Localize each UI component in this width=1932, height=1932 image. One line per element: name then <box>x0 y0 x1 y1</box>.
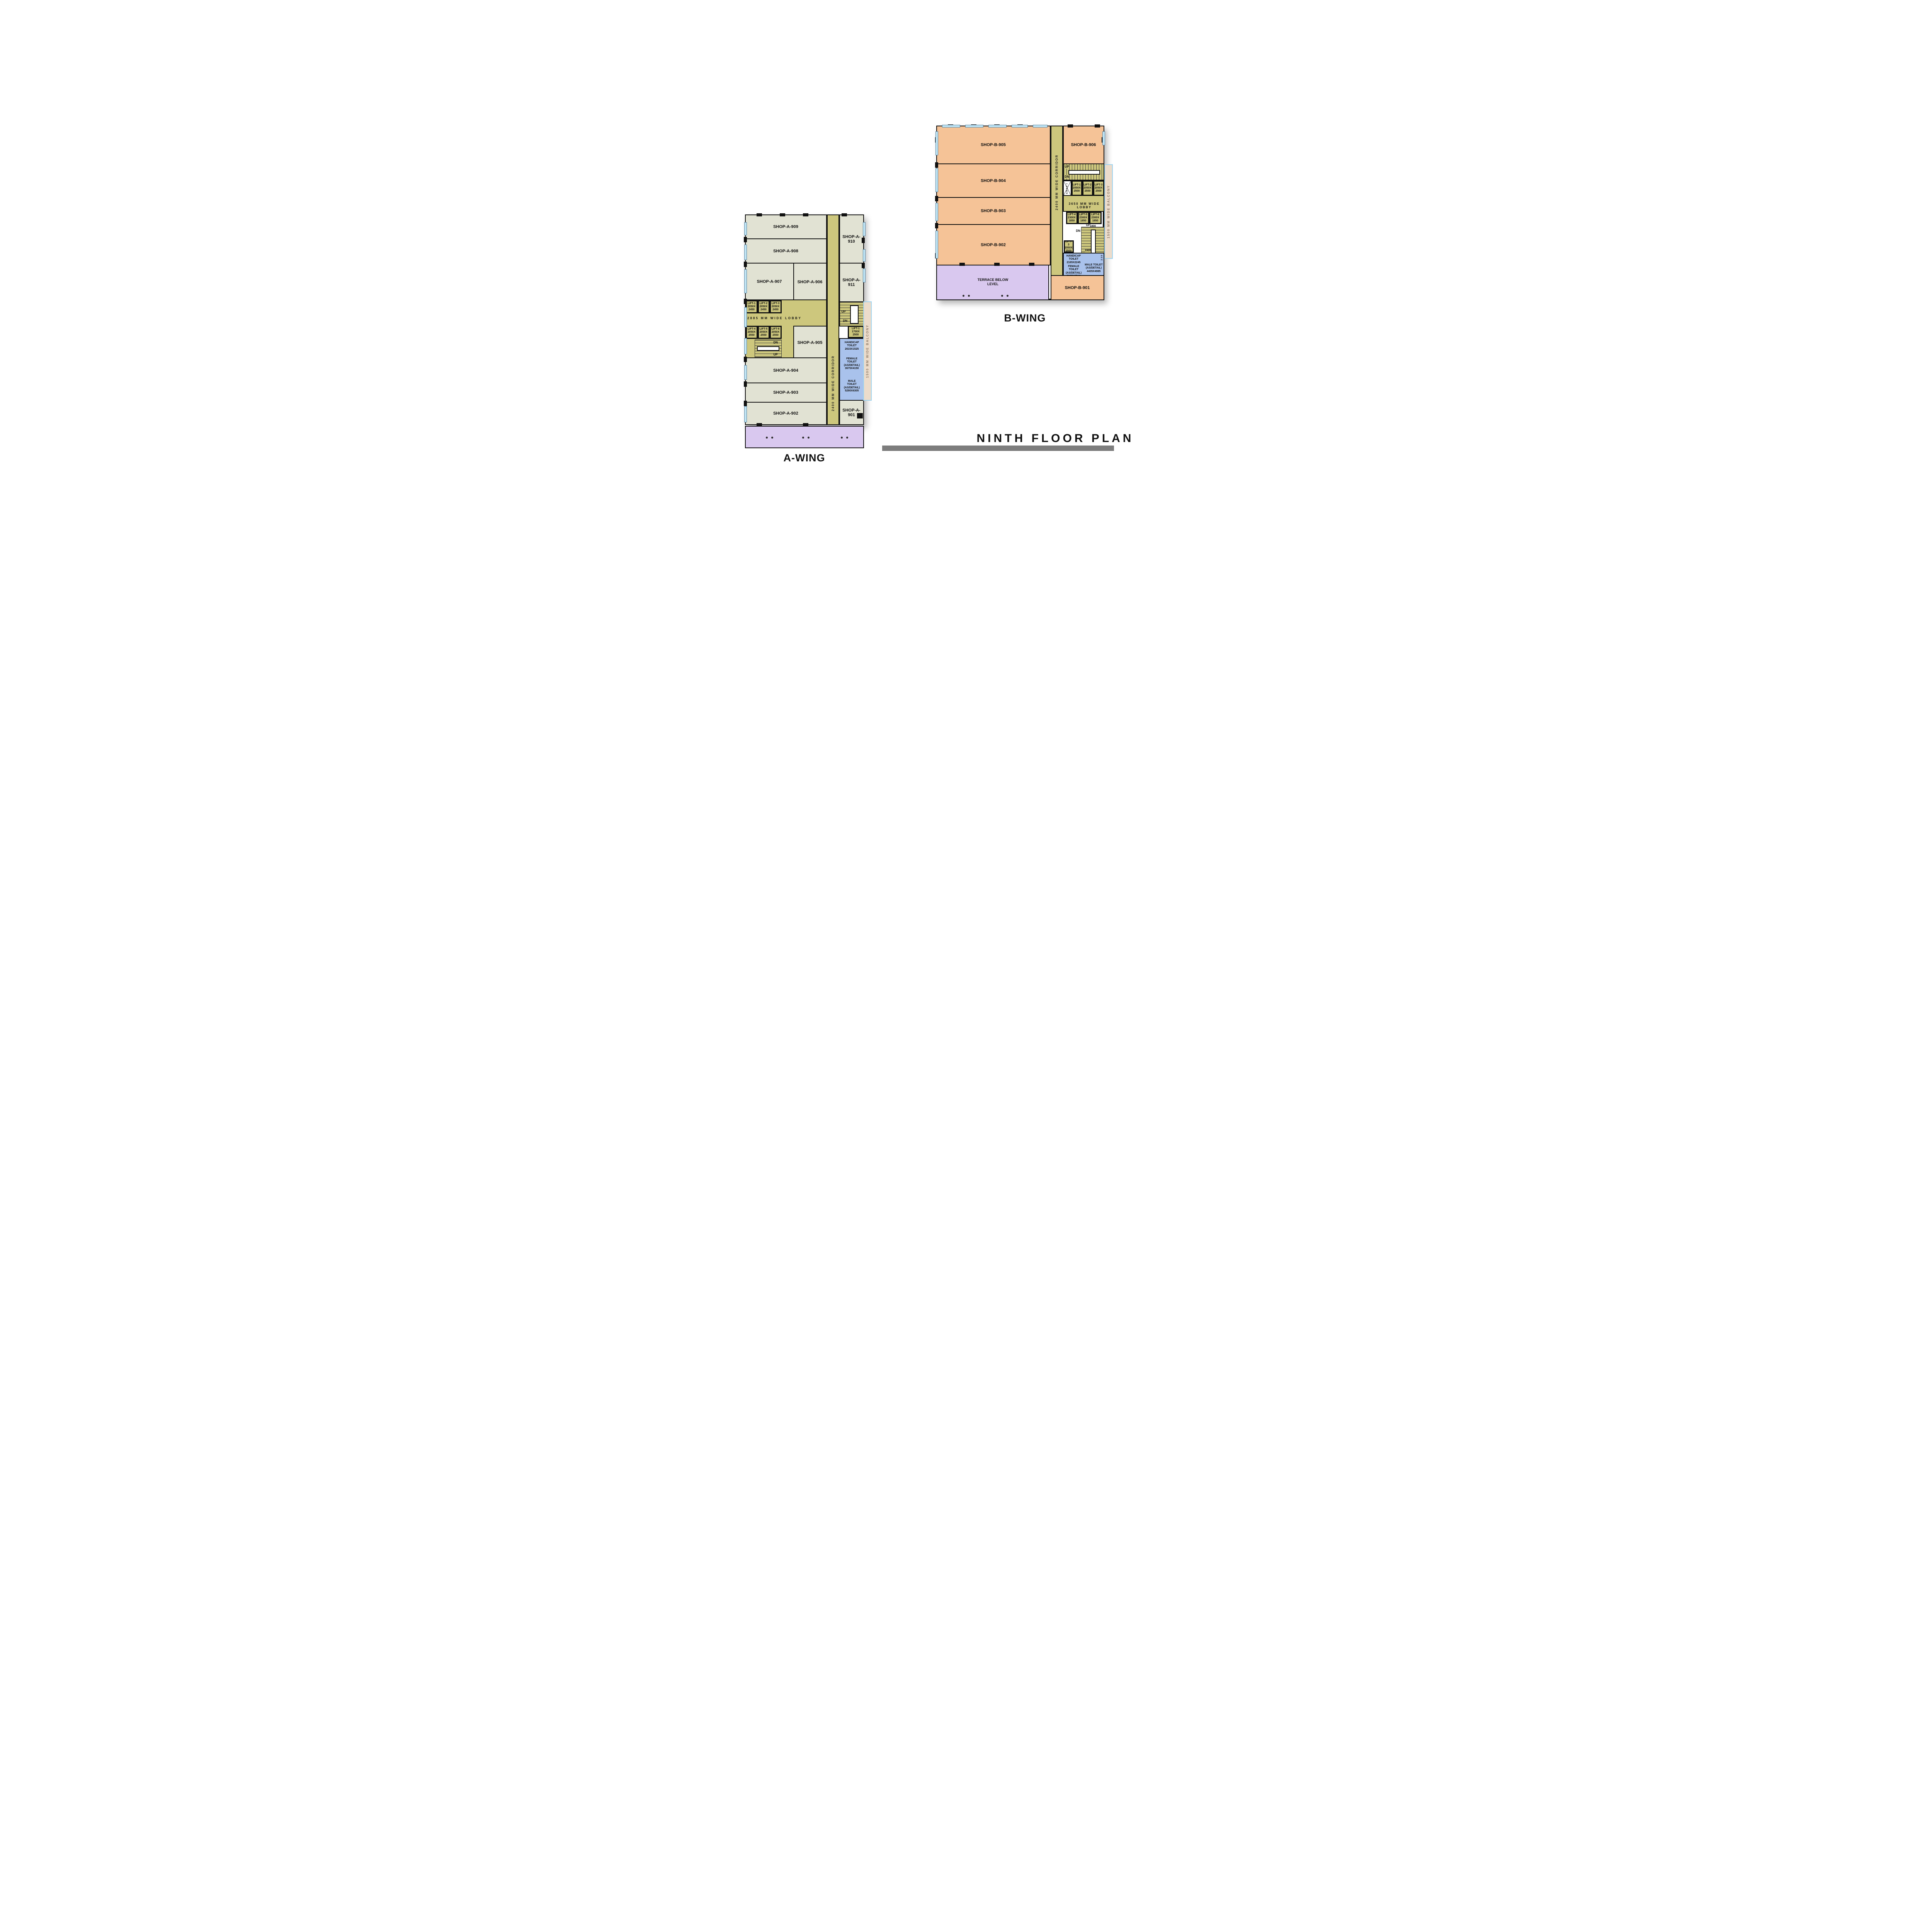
b-wing-lift-3-label: LIFT-3 2050X 2500 <box>1095 184 1103 193</box>
b-wing-lift-2: LIFT-2 2050X 2500 <box>1082 180 1093 196</box>
a-wing-toilet-block: HANDICAP TOILET 2615X1525 FEMALE TOILET … <box>839 338 864 401</box>
room-shop-a-907: SHOP-A-907 <box>745 263 794 300</box>
b-wing-lower-stair-dn: DN <box>1076 229 1081 233</box>
a-wing-lift-5: LIFT-5 2050X 2550 <box>758 326 770 339</box>
a-wing-lift-6-label: LIFT-6 2050X 2550 <box>772 328 780 337</box>
b-wing-balcony-label: 1500 MM WIDE BALCONY <box>1105 165 1112 258</box>
shop-a-906-label: SHOP-A-906 <box>798 280 823 284</box>
a-wing-left-stair: DN UP <box>755 340 782 357</box>
window <box>1033 125 1048 128</box>
b-wing-lift-6-label: LIFT-6 2300X 1850 <box>1091 213 1099 223</box>
a-wing-lift-5-label: LIFT-5 2050X 2550 <box>760 328 768 337</box>
room-shop-b-903: SHOP-B-903 <box>936 197 1051 225</box>
a-wing-left-stair-up: UP <box>774 353 778 356</box>
b-wing-male-toilet-label: MALE TOILET (AS/DETAIL) 4435X4985 <box>1084 264 1104 273</box>
window <box>942 125 960 128</box>
shop-a-909-label: SHOP-A-909 <box>773 224 798 229</box>
wall-column <box>1029 263 1034 266</box>
b-wing-top-stair-landing <box>1068 170 1100 175</box>
shop-b-903-label: SHOP-B-903 <box>981 209 1006 213</box>
terrace-dot <box>963 295 964 297</box>
wall-column <box>780 213 785 216</box>
a-wing-lift-4: LIFT-4 2050X 2550 <box>746 326 758 339</box>
a-wing-column-block <box>857 413 863 418</box>
room-shop-b-902: SHOP-B-902 <box>936 224 1051 265</box>
window <box>863 222 866 236</box>
a-wing-lift-3-label: LIFT-3 2050X 2450 <box>772 302 780 311</box>
b-wing-lobby: 3650 MM WIDE LOBBY <box>1063 195 1104 212</box>
a-wing-lobby-label: 2885 MM WIDE LOBBY <box>746 316 804 320</box>
b-wing-handicap-toilet-label: HANDICAP TOILET 2165X2245 <box>1065 255 1083 264</box>
room-shop-a-906: SHOP-A-906 <box>793 263 827 301</box>
b-wing-corridor: 2400 MM WIDE CORRIDOR <box>1051 126 1063 276</box>
terrace-dot <box>1001 295 1003 297</box>
wall-column <box>744 299 747 304</box>
balcony-dot <box>841 437 843 439</box>
a-wing-passenger-lift-1-label: LIFT-1 1700X 2500 <box>852 327 860 337</box>
b-wing-lobby-label: 3650 MM WIDE LOBBY <box>1064 202 1105 209</box>
window <box>935 131 938 155</box>
wall-column <box>803 213 808 216</box>
b-wing-lift-1: LIFT-1 2050X 2500 <box>1071 180 1082 196</box>
b-wing-top-stair-up: UP <box>1065 165 1069 168</box>
b-wing-terrace: TERRACE BELOW LEVEL <box>936 265 1049 300</box>
wall-column <box>935 162 938 168</box>
wall-column <box>994 263 1000 266</box>
wall-column <box>744 357 747 362</box>
window <box>935 168 938 192</box>
b-wing-toilet-block: HANDICAP TOILET 2165X2245 FEMALE TOILET … <box>1063 253 1104 276</box>
b-wing-lift-6: LIFT-6 2300X 1850 <box>1089 212 1102 224</box>
wall-column <box>935 196 938 201</box>
balcony-dot <box>771 437 773 439</box>
window <box>1102 131 1105 145</box>
wall-column <box>757 423 762 426</box>
a-wing-corridor-label: 2400 MM WIDE CORRIDOR <box>828 343 838 424</box>
b-wing-lift-2-label: LIFT-2 2050X 2500 <box>1083 184 1092 193</box>
shop-b-904-label: SHOP-B-904 <box>981 179 1006 183</box>
b-wing-shaft: SHAFT <box>1063 180 1071 196</box>
wall-column <box>862 238 865 243</box>
b-wing-corridor-label: 2400 MM WIDE CORRIDOR <box>1051 144 1062 221</box>
a-wing-male-toilet-label: MALE TOILET (AS/DETAIL) 5290X6305 <box>841 380 863 393</box>
shaft-label: SHAFT <box>1064 181 1071 195</box>
a-wing-lift-6: LIFT-6 2050X 2550 <box>770 326 782 339</box>
room-shop-a-910: SHOP-A-910 <box>839 214 864 264</box>
balcony-dot <box>808 437 810 439</box>
wall-column <box>842 213 847 216</box>
a-wing-lift-2-label: LIFT-2 2050X 2450 <box>760 302 768 311</box>
a-wing-female-toilet-label: FEMALE TOILET (AS/DETAIL) 3675X4150 <box>841 357 863 371</box>
wall-column <box>1068 124 1073 128</box>
shop-a-911-label: SHOP-A-911 <box>840 278 863 287</box>
a-wing-right-stair-landing <box>850 305 859 324</box>
room-shop-a-901: SHOP-A-901 <box>839 400 864 425</box>
room-shop-a-904: SHOP-A-904 <box>745 357 827 383</box>
terrace-dot <box>968 295 970 297</box>
shop-a-903-label: SHOP-A-903 <box>773 390 798 395</box>
room-shop-b-904: SHOP-B-904 <box>936 163 1051 198</box>
window <box>1012 125 1028 128</box>
a-wing-left-stair-dn: DN <box>774 341 778 344</box>
dim-230: 230 <box>1101 254 1103 260</box>
room-shop-b-906: SHOP-B-906 <box>1063 126 1104 164</box>
wall-column <box>935 223 938 228</box>
window <box>935 231 938 259</box>
wall-column <box>744 381 747 387</box>
a-wing-right-stair-dn: DN <box>843 319 848 323</box>
room-shop-a-911: SHOP-A-911 <box>839 263 864 302</box>
window <box>863 249 866 262</box>
b-wing-title: B-WING <box>963 312 1087 324</box>
window <box>744 245 747 260</box>
a-wing-right-stair-up: UP <box>842 310 846 313</box>
a-wing-balcony-label: 1500 MM WIDE BALCONY <box>864 302 871 400</box>
window <box>744 406 747 422</box>
b-wing-top-stair-dn: DN <box>1065 175 1070 179</box>
shop-b-906-label: SHOP-B-906 <box>1071 143 1096 147</box>
floor-plan-canvas: SHOP-A-909 SHOP-A-908 SHOP-A-907 SHOP-A-… <box>666 0 1267 476</box>
b-wing-lift-1-label: LIFT-1 2050X 2500 <box>1073 184 1081 193</box>
wall-column <box>744 237 747 242</box>
title-underline-bar <box>882 446 1114 451</box>
wall-column <box>757 213 762 216</box>
b-wing-lift-3b: LIFT-3 2050X 2500 <box>1064 240 1074 253</box>
room-shop-a-909: SHOP-A-909 <box>745 214 827 239</box>
b-wing-lift-5-label: LIFT-5 2300X 1850 <box>1079 213 1087 223</box>
shop-a-902-label: SHOP-A-902 <box>773 411 798 416</box>
a-wing-corridor: 2400 MM WIDE CORRIDOR <box>827 214 839 425</box>
balcony-dot <box>846 437 848 439</box>
wall-column <box>744 401 747 406</box>
wall-column <box>862 263 865 268</box>
room-shop-a-903: SHOP-A-903 <box>745 383 827 403</box>
shop-a-904-label: SHOP-A-904 <box>773 368 798 373</box>
shop-a-907-label: SHOP-A-907 <box>757 279 782 284</box>
a-wing-title: A-WING <box>745 452 864 464</box>
a-wing-side-balcony: 1500 MM WIDE BALCONY <box>863 301 872 401</box>
a-wing-handicap-toilet-label: HANDICAP TOILET 2615X1525 <box>841 341 863 351</box>
window <box>935 203 938 221</box>
a-wing-lift-1-label: LIFT-1 2050X 2450 <box>748 302 756 311</box>
shop-b-905-label: SHOP-B-905 <box>981 143 1006 147</box>
a-wing-left-stair-landing <box>757 346 779 351</box>
b-wing-lift-3: LIFT-3 2050X 2500 <box>1093 180 1104 196</box>
b-wing-lift-3b-label: LIFT-3 2050X 2500 <box>1065 240 1072 253</box>
page-title: NINTH FLOOR PLAN <box>977 432 1134 445</box>
window <box>988 125 1007 128</box>
room-shop-b-901: SHOP-B-901 <box>1051 275 1104 300</box>
a-wing-bottom-balcony <box>745 426 864 448</box>
a-wing-lift-4-label: LIFT-4 2050X 2550 <box>748 328 756 337</box>
shop-b-902-label: SHOP-B-902 <box>981 243 1006 247</box>
terrace-label: TERRACE BELOW LEVEL <box>964 278 1022 286</box>
wall-column <box>744 262 747 267</box>
window <box>744 307 747 327</box>
b-wing-lower-stair-up: UP <box>1086 223 1090 227</box>
b-wing-lift-4: LIFT-4 2300X 1850 <box>1066 212 1078 224</box>
b-wing-lift-4-label: LIFT-4 2300X 1850 <box>1068 213 1076 223</box>
a-wing-lift-2: LIFT-2 2050X 2450 <box>758 300 770 313</box>
dim-1920: 1920 <box>1085 249 1091 252</box>
b-wing-top-stair: UP DN <box>1063 163 1104 180</box>
room-shop-a-905: SHOP-A-905 <box>793 326 827 359</box>
wall-column <box>803 423 808 426</box>
shop-b-901-label: SHOP-B-901 <box>1065 286 1090 290</box>
wall-column <box>959 263 965 266</box>
room-shop-a-908: SHOP-A-908 <box>745 238 827 264</box>
terrace-dot <box>1007 295 1009 297</box>
shop-a-905-label: SHOP-A-905 <box>798 340 823 345</box>
b-wing-building: SHOP-B-905 SHOP-B-904 SHOP-B-903 SHOP-B-… <box>936 126 1113 309</box>
balcony-dot <box>766 437 768 439</box>
b-wing-side-balcony: 1500 MM WIDE BALCONY <box>1104 164 1113 259</box>
window <box>863 269 866 282</box>
b-wing-lift-5: LIFT-5 2300X 1850 <box>1078 212 1089 224</box>
window <box>744 269 747 293</box>
window <box>965 125 983 128</box>
window <box>744 222 747 235</box>
a-wing-right-stair: UP DN <box>839 301 864 327</box>
room-shop-a-902: SHOP-A-902 <box>745 402 827 425</box>
a-wing-lift-1: LIFT-1 2050X 2450 <box>746 300 758 313</box>
shop-a-908-label: SHOP-A-908 <box>773 249 798 253</box>
balcony-dot <box>802 437 804 439</box>
window <box>744 338 747 354</box>
a-wing-lift-3: LIFT-3 2050X 2450 <box>770 300 782 313</box>
a-wing-passenger-lift-1: LIFT-1 1700X 2500 <box>848 326 864 338</box>
shop-a-910-label: SHOP-A-910 <box>840 235 863 244</box>
a-wing-building: SHOP-A-909 SHOP-A-908 SHOP-A-907 SHOP-A-… <box>745 214 872 466</box>
room-shop-b-905: SHOP-B-905 <box>936 126 1051 164</box>
wall-column <box>1095 124 1100 128</box>
window <box>744 365 747 380</box>
